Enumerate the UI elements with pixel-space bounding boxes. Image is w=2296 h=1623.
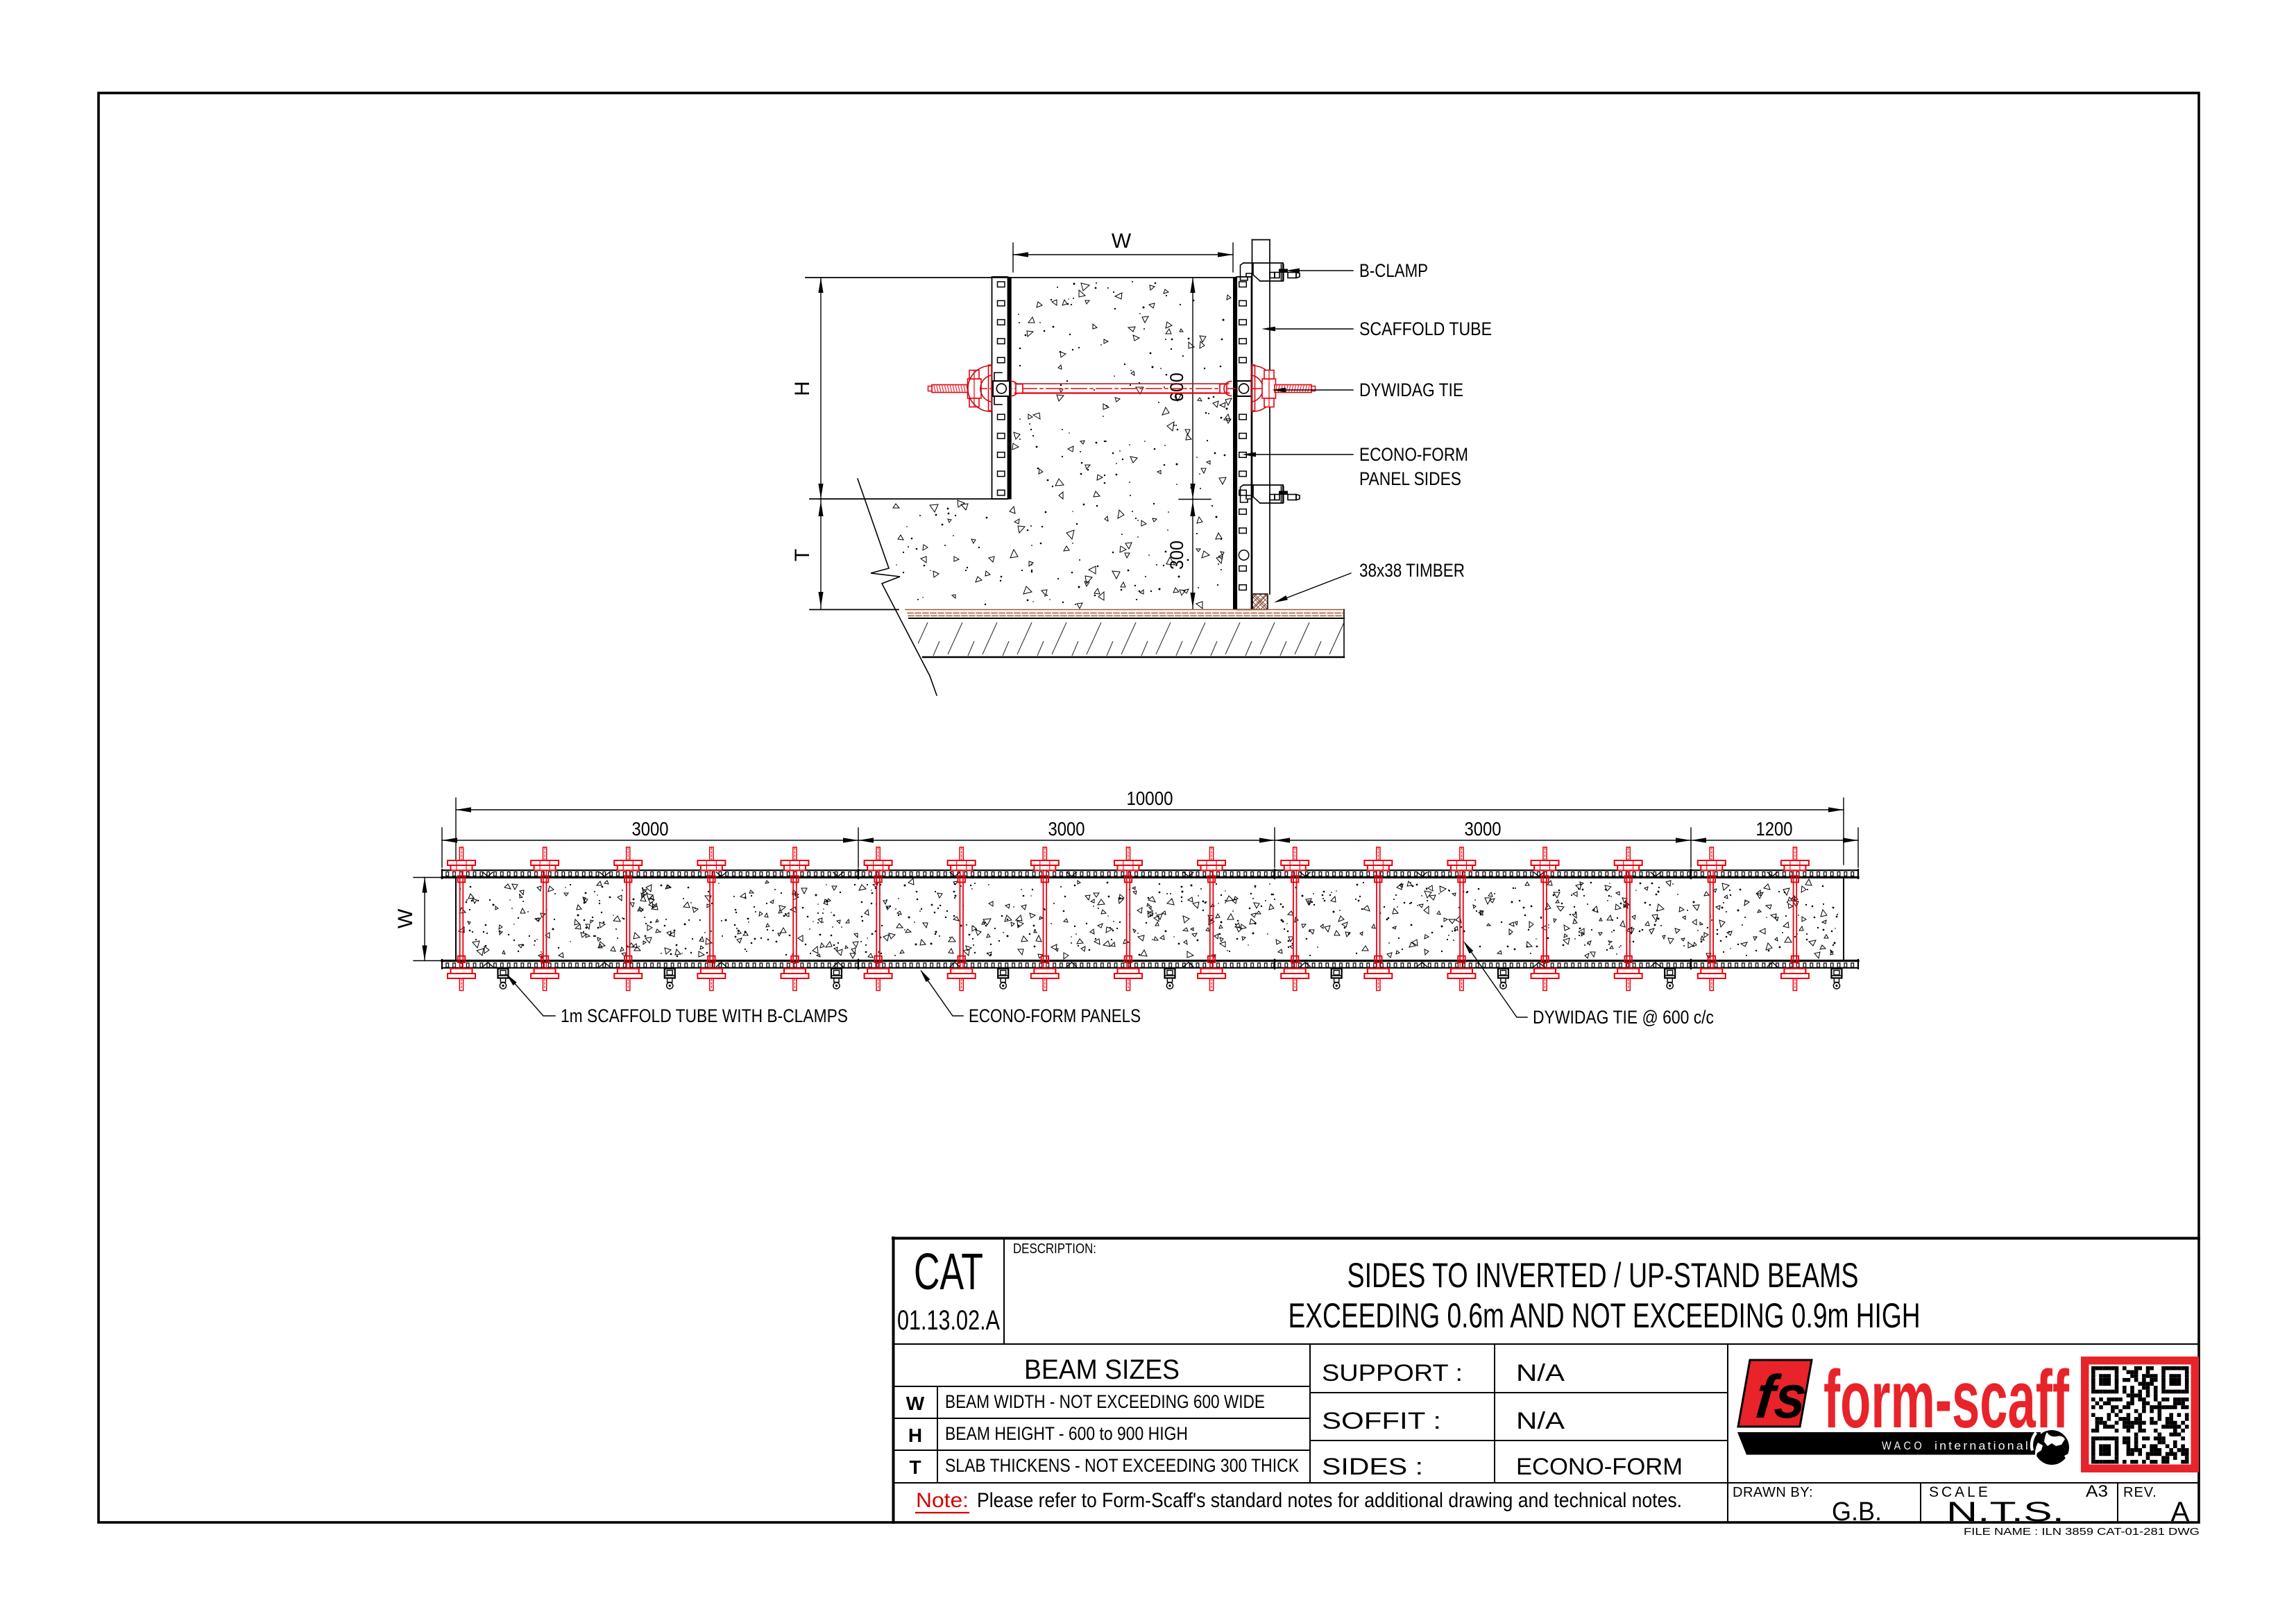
svg-text:DYWIDAG TIE @ 600 c/c: DYWIDAG TIE @ 600 c/c [1533,1007,1714,1028]
svg-text:600: 600 [1166,373,1187,402]
svg-text:Note:: Note: [916,1489,969,1512]
svg-text:W: W [906,1393,925,1414]
svg-text:N/A: N/A [1516,1360,1565,1386]
svg-text:SCAFFOLD TUBE: SCAFFOLD TUBE [1359,318,1492,339]
svg-text:DYWIDAG TIE: DYWIDAG TIE [1359,380,1463,400]
svg-text:BEAM WIDTH - NOT EXCEEDING 600: BEAM WIDTH - NOT EXCEEDING 600 WIDE [945,1391,1265,1412]
svg-text:38x38 TIMBER: 38x38 TIMBER [1359,560,1465,581]
svg-text:1m SCAFFOLD TUBE WITH B-CLAMPS: 1m SCAFFOLD TUBE WITH B-CLAMPS [561,1005,848,1026]
svg-text:T: T [791,549,814,561]
svg-text:T: T [909,1456,921,1478]
svg-text:SLAB THICKENS - NOT EXCEEDING: SLAB THICKENS - NOT EXCEEDING 300 THICK [945,1455,1299,1476]
svg-text:fs: fs [1753,1362,1810,1431]
svg-text:01.13.02.A: 01.13.02.A [897,1305,1000,1336]
svg-text:DESCRIPTION:: DESCRIPTION: [1013,1241,1096,1257]
svg-text:EXCEEDING 0.6m AND NOT EXCEEDI: EXCEEDING 0.6m AND NOT EXCEEDING 0.9m HI… [1289,1296,1921,1335]
svg-text:W: W [1112,230,1132,253]
svg-text:DRAWN BY:: DRAWN BY: [1733,1485,1813,1500]
svg-text:W: W [394,908,417,928]
svg-text:1200: 1200 [1756,818,1793,840]
svg-text:REV.: REV. [2123,1485,2157,1500]
svg-text:SOFFIT :: SOFFIT : [1322,1408,1441,1434]
svg-text:A3: A3 [2086,1482,2108,1501]
svg-text:10000: 10000 [1127,788,1173,809]
svg-text:3000: 3000 [632,818,669,840]
svg-text:3000: 3000 [1465,818,1502,840]
svg-text:CAT: CAT [914,1243,983,1300]
svg-text:N/A: N/A [1516,1408,1565,1434]
svg-text:H: H [908,1425,922,1446]
svg-text:N.T.S.: N.T.S. [1946,1497,2064,1527]
svg-text:300: 300 [1166,541,1187,570]
svg-text:WACO: WACO [1882,1439,1925,1452]
svg-text:ECONO-FORM: ECONO-FORM [1516,1454,1683,1480]
svg-text:BEAM SIZES: BEAM SIZES [1024,1354,1180,1385]
svg-text:BEAM HEIGHT - 600 to 900 HIGH: BEAM HEIGHT - 600 to 900 HIGH [945,1423,1188,1444]
svg-text:B-CLAMP: B-CLAMP [1359,260,1428,281]
svg-text:SIDES TO INVERTED / UP-STAND B: SIDES TO INVERTED / UP-STAND BEAMS [1347,1256,1859,1295]
svg-text:3000: 3000 [1048,818,1085,840]
svg-text:FILE NAME : ILN 3859 CAT-01-28: FILE NAME : ILN 3859 CAT-01-281 DWG [1964,1526,2200,1538]
svg-text:SIDES :: SIDES : [1322,1454,1423,1480]
svg-text:PANEL SIDES: PANEL SIDES [1359,468,1461,489]
svg-text:ECONO-FORM: ECONO-FORM [1359,444,1468,465]
svg-text:H: H [791,381,814,396]
svg-text:A: A [2171,1497,2190,1527]
svg-text:SUPPORT :: SUPPORT : [1322,1360,1463,1386]
svg-text:ECONO-FORM PANELS: ECONO-FORM PANELS [969,1005,1141,1026]
svg-text:international: international [1934,1439,2030,1452]
svg-text:Please refer to Form-Scaff's s: Please refer to Form-Scaff's standard no… [977,1489,1682,1512]
svg-text:form-scaff: form-scaff [1823,1354,2069,1445]
svg-text:G.B.: G.B. [1832,1497,1882,1527]
